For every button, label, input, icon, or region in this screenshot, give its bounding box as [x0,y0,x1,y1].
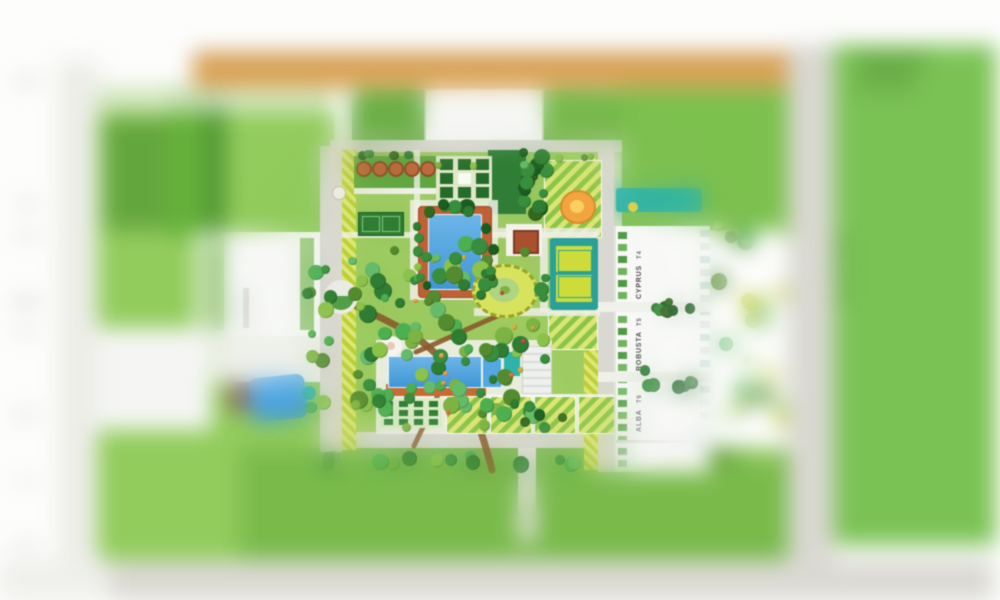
masterplan-rendering: CYPRUS T4 ROBUSTA T5 ALBA T6 [0,0,1000,600]
masterplan-screenshot: CYPRUS T4 ROBUSTA T5 ALBA T6 [0,0,1000,600]
vegetation-layer [0,0,1000,600]
